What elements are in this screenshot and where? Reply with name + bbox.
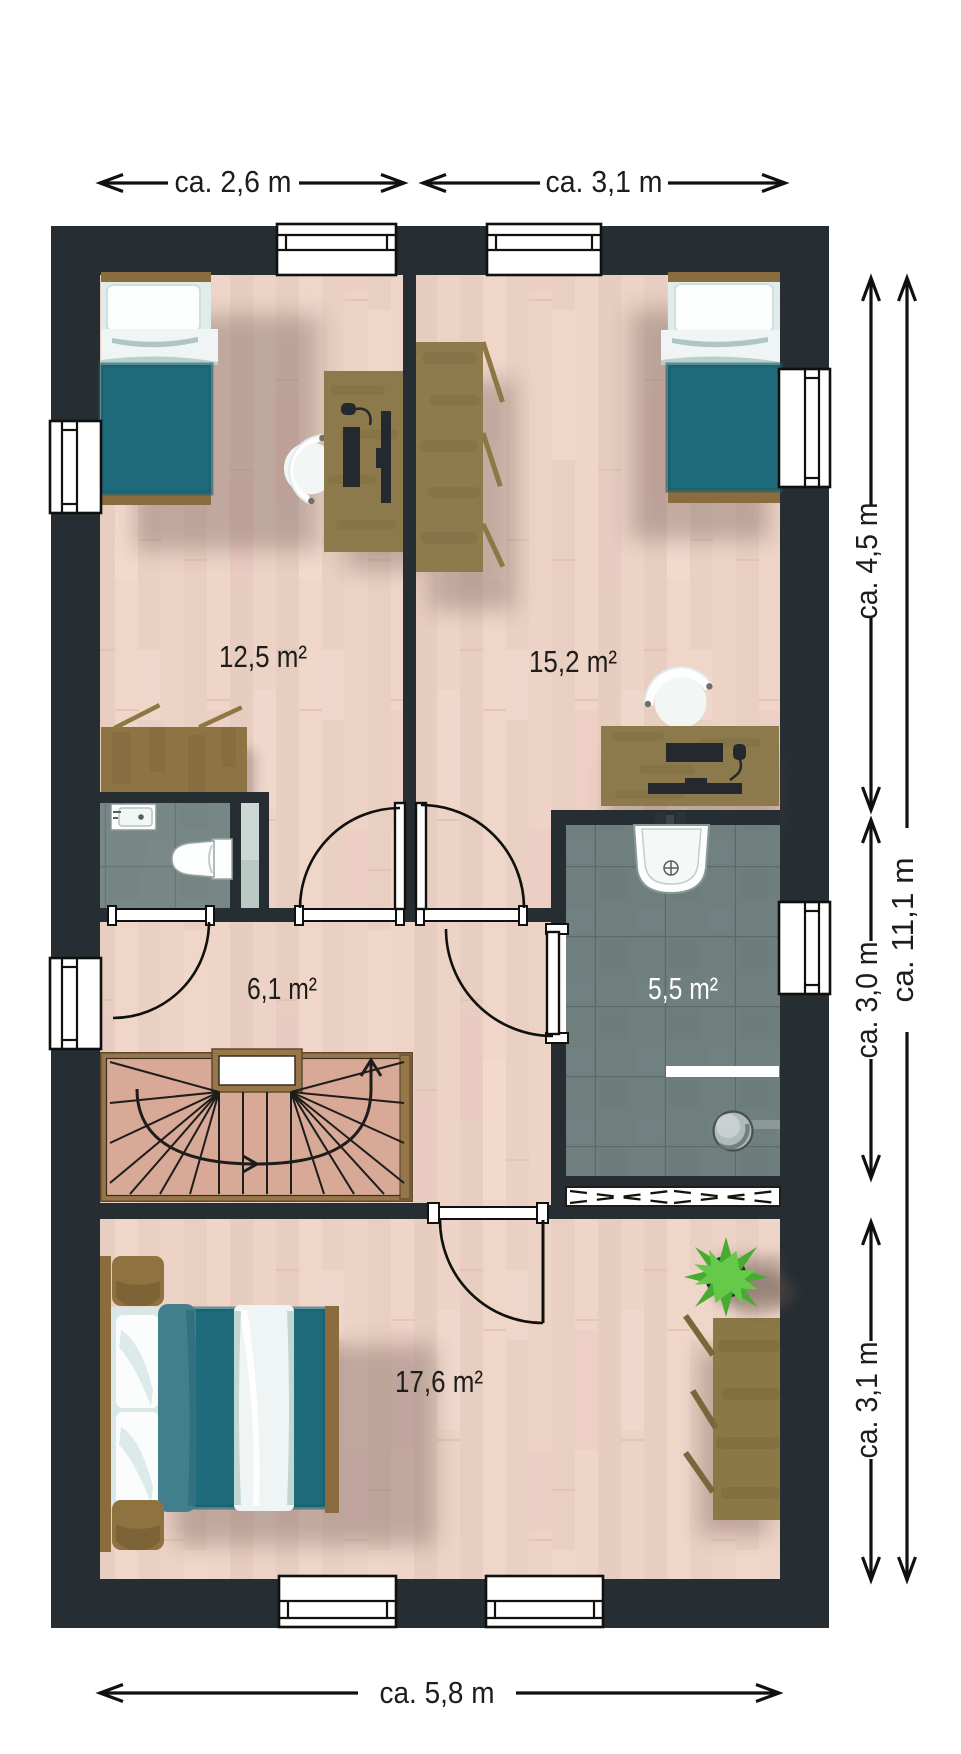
svg-text:ca. 3,0 m: ca. 3,0 m (849, 942, 884, 1059)
svg-text:6,1 m²: 6,1 m² (247, 971, 317, 1006)
svg-text:ca. 5,8 m: ca. 5,8 m (380, 1675, 495, 1710)
svg-text:ca. 11,1 m: ca. 11,1 m (885, 858, 920, 1003)
svg-text:ca. 3,1 m: ca. 3,1 m (849, 1342, 884, 1459)
svg-text:15,2 m²: 15,2 m² (529, 644, 617, 679)
svg-text:12,5 m²: 12,5 m² (219, 639, 307, 674)
svg-text:5,5 m²: 5,5 m² (648, 971, 718, 1006)
svg-text:ca. 2,6 m: ca. 2,6 m (175, 164, 292, 199)
svg-text:17,6 m²: 17,6 m² (395, 1364, 483, 1399)
svg-text:ca. 4,5 m: ca. 4,5 m (849, 503, 884, 620)
svg-text:ca. 3,1 m: ca. 3,1 m (546, 164, 663, 199)
